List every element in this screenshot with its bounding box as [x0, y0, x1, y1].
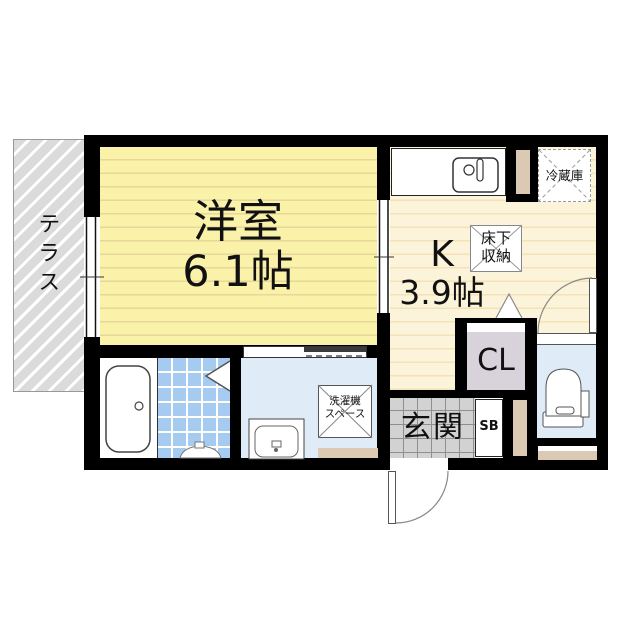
terrace-label: テラス	[34, 212, 58, 299]
washroom-faucet	[272, 441, 281, 447]
washroom-faucet-dot	[274, 448, 278, 452]
underfloor-storage-label: 床下 収納	[470, 229, 522, 265]
fixtures-overlay	[0, 0, 640, 640]
bath-folding-door	[206, 361, 230, 391]
closet-door-triangle	[496, 294, 522, 318]
toilet-lid-pill	[556, 407, 574, 414]
underfloor-storage-line2: 収納	[470, 247, 522, 265]
bathtub	[106, 366, 150, 452]
refrigerator-label: 冷蔵庫	[538, 169, 591, 183]
shoe-box-label: SB	[475, 420, 503, 434]
washer-space-label: 洗濯機 スペース	[318, 395, 372, 421]
kitchen-sink	[453, 158, 498, 192]
kitchen-faucet-base	[464, 165, 474, 175]
bath-step-knob	[195, 442, 204, 448]
floorplan-canvas: テラス 洋室 6.1帖 K 3.9帖 床下 収納 冷蔵庫 CL 玄関 SB 洗濯…	[0, 0, 640, 640]
bathtub-drain	[135, 402, 143, 410]
closet-label: CL	[467, 344, 525, 377]
toilet-handle	[581, 391, 589, 417]
entrance-door-arc	[396, 471, 448, 523]
entrance-label: 玄関	[394, 411, 472, 444]
kitchen-faucet	[477, 159, 483, 181]
washer-space-line2: スペース	[318, 408, 372, 421]
kitchen-area: 3.9帖	[392, 274, 492, 311]
underfloor-storage-line1: 床下	[470, 229, 522, 247]
toilet-door-arc	[538, 278, 592, 333]
main-room-label: 洋室 6.1帖	[138, 196, 338, 296]
main-room-name: 洋室	[138, 196, 338, 248]
main-room-area: 6.1帖	[138, 248, 338, 296]
washer-space-line1: 洗濯機	[318, 395, 372, 408]
